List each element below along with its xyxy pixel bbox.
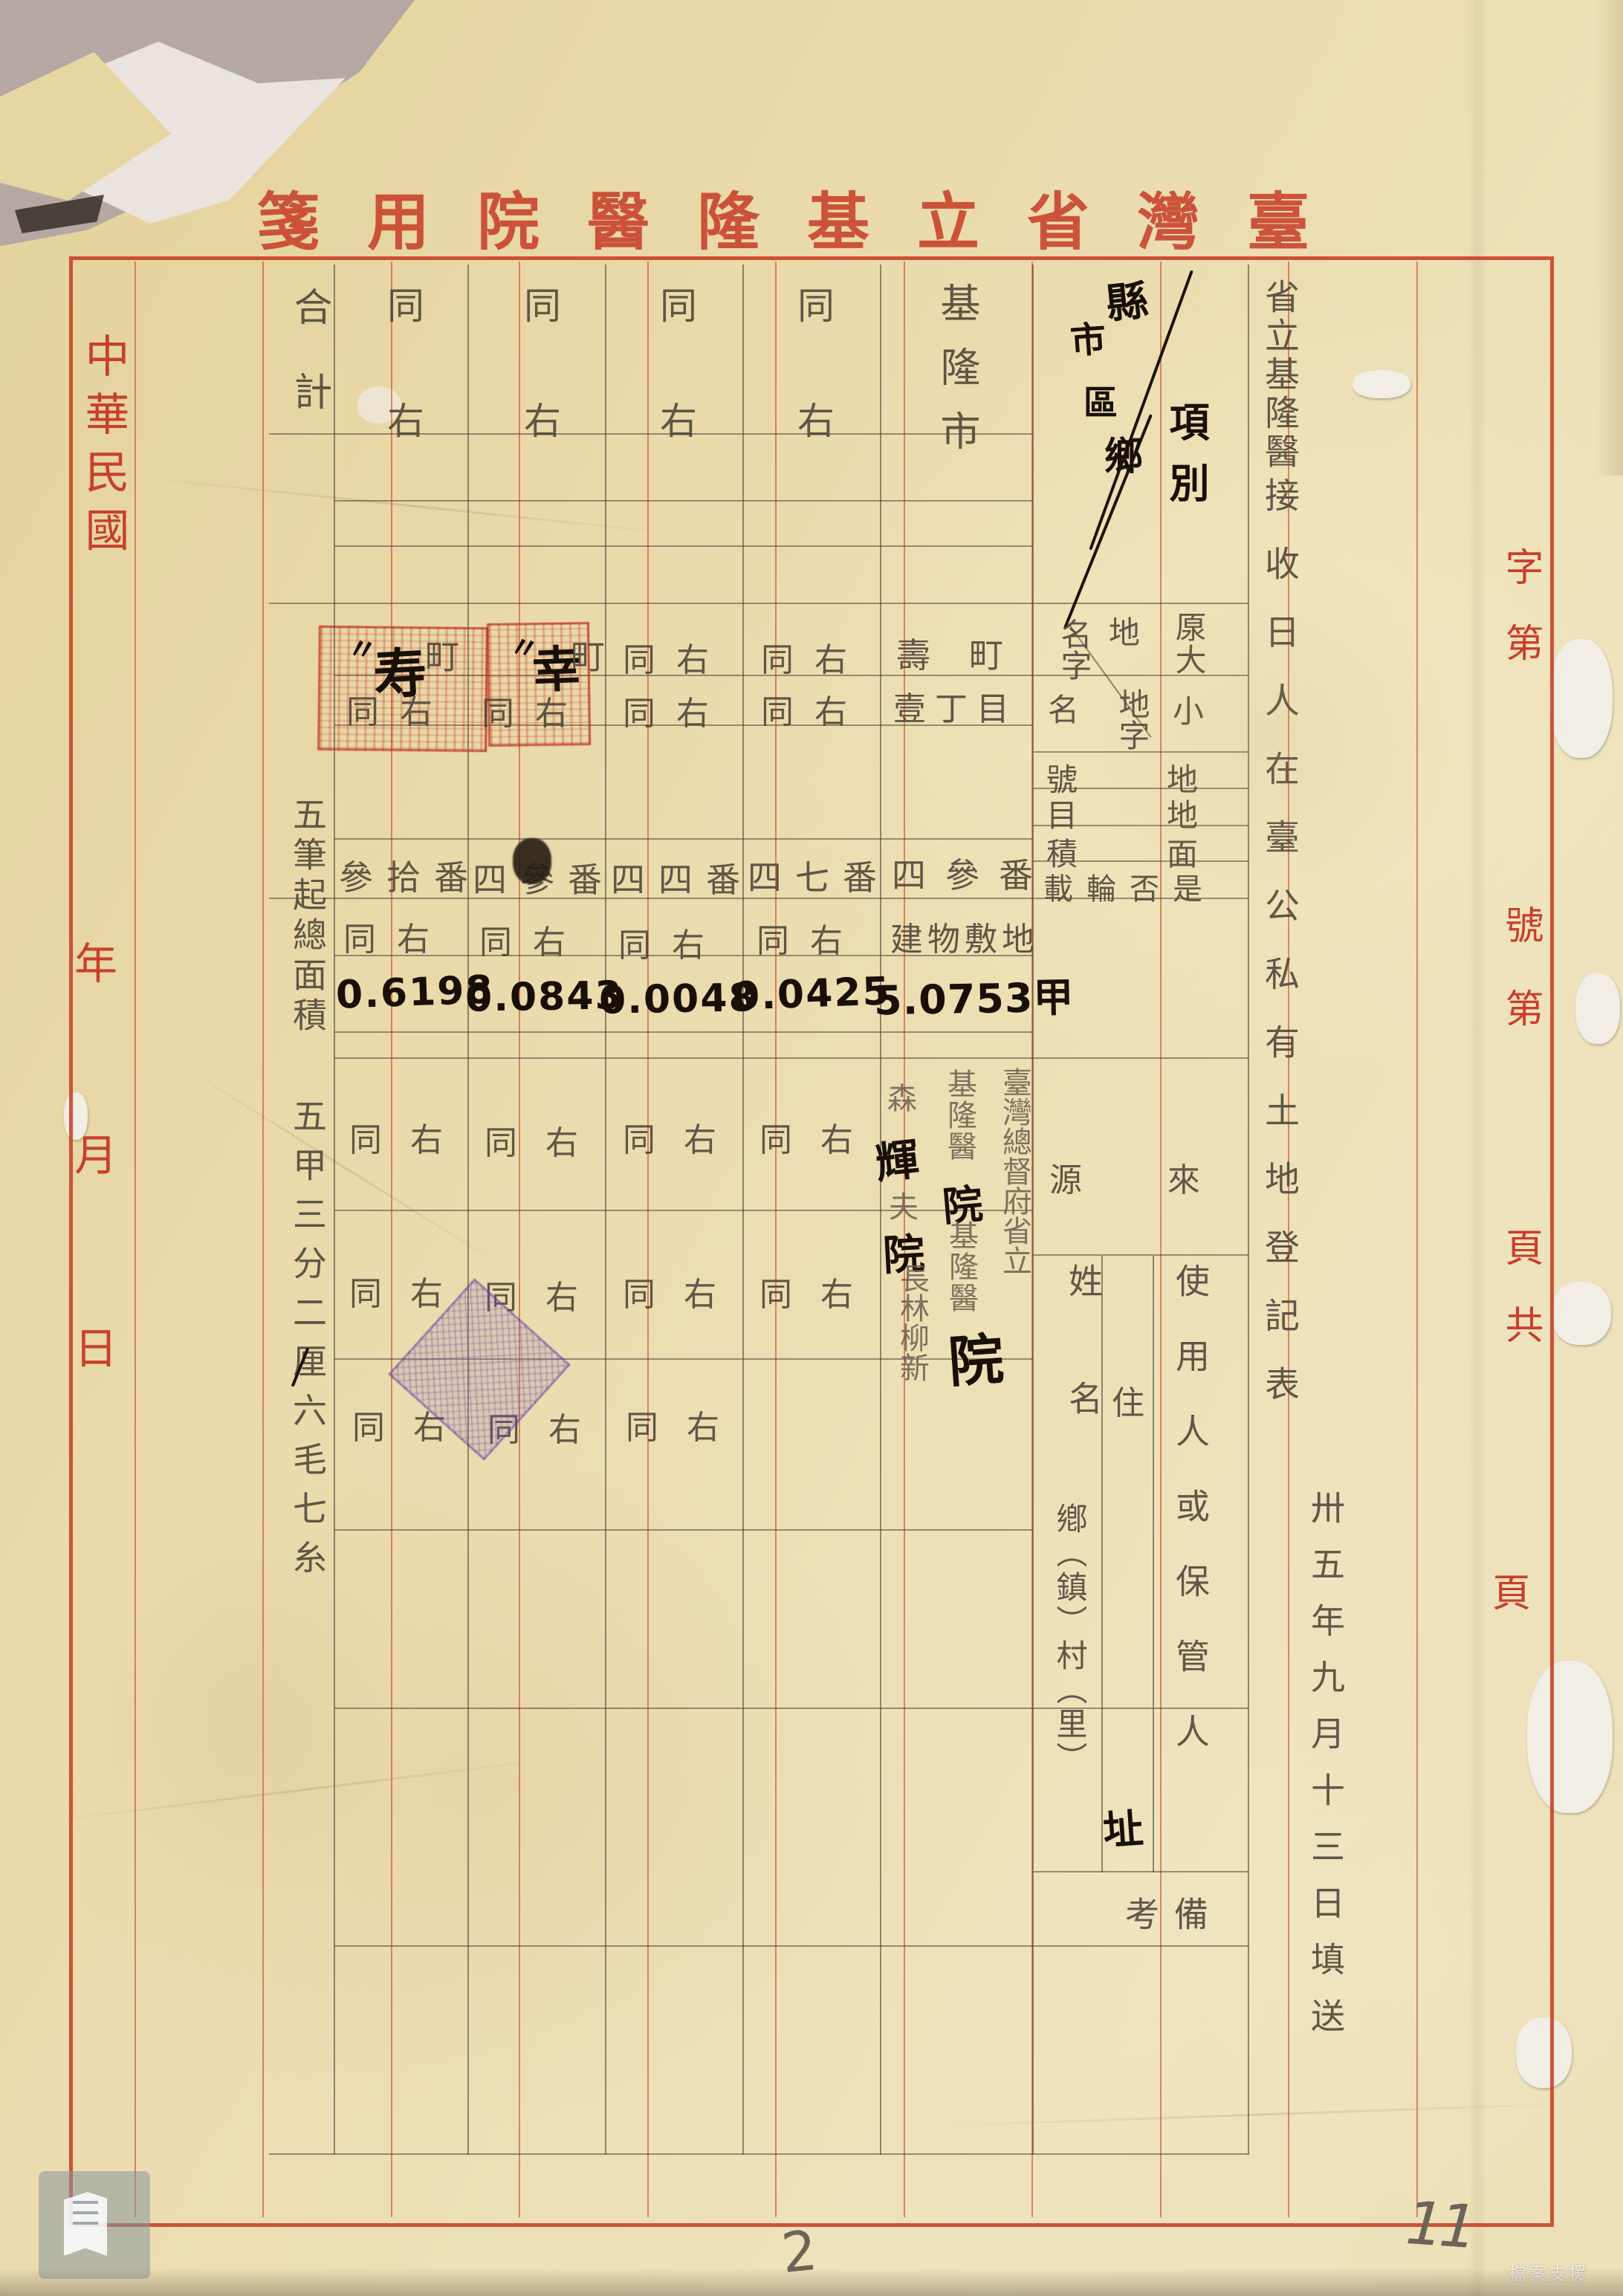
cell-category-c2: 同右 xyxy=(757,914,864,961)
cell-oaza-c2: 同右 xyxy=(761,633,868,681)
cell-name-c3: 同右 xyxy=(623,1268,745,1315)
cell-source-c2: 同右 xyxy=(759,1113,881,1161)
cell-name-c1-ink-large: 院 xyxy=(945,1315,1005,1398)
table-line xyxy=(334,838,1033,840)
ruled-line xyxy=(519,262,520,2217)
right-margin-ye-gong: 頁共 xyxy=(1492,1228,1548,1382)
table-line xyxy=(334,1057,1248,1059)
label-remark: 備考 xyxy=(1115,1896,1213,2296)
bottom-edge-shadow xyxy=(0,2268,1623,2296)
right-margin-hao-di: 號第 xyxy=(1492,905,1548,1071)
left-margin-year: 年 xyxy=(74,929,117,991)
left-margin-month: 月 xyxy=(74,1121,117,1183)
cell-koaza-c5: 同右 xyxy=(346,685,453,733)
watermark-book-line xyxy=(73,2201,98,2204)
cell-name-c1-o: 夫 xyxy=(889,1183,919,1226)
cell-lot-c5: 參拾番 xyxy=(339,851,482,900)
cell-name-c1-director: 長林柳新 xyxy=(890,1263,933,1382)
cell-oaza-c3: 同右 xyxy=(623,633,730,681)
corner-region-district: 區 xyxy=(1083,376,1118,425)
cell-name-c1-line1: 基隆醫 xyxy=(939,1220,982,1314)
left-margin-day: 日 xyxy=(74,1314,117,1376)
cell-county-c3: 同右 xyxy=(649,286,702,516)
ruled-line xyxy=(391,262,392,2217)
table-line xyxy=(269,2153,1248,2155)
label-source: 來源 xyxy=(1049,1153,1286,1201)
label-landname-b-left: 名 xyxy=(1048,685,1079,730)
table-line xyxy=(334,1945,1248,1947)
cell-lot-c2: 四七番 xyxy=(748,851,890,900)
scanned-land-registration-form: 箋用院醫隆基立省灣臺 中華民國 年 月 日 字第 號第 頁共 頁 省立基隆醫 接… xyxy=(0,0,1623,2296)
label-name: 姓名 xyxy=(1058,1263,1107,1498)
paper-hole xyxy=(1575,973,1620,1044)
cell-source-c3: 同右 xyxy=(623,1113,745,1161)
corner-region-county: 縣 xyxy=(1103,267,1150,331)
left-margin-era: 中華民國 xyxy=(71,333,136,565)
cell-category-c3: 同右 xyxy=(618,918,725,966)
cell-name-c1-ink-teru: 輝 xyxy=(872,1124,921,1191)
table-line xyxy=(334,1708,1248,1709)
label-address-top: 住 xyxy=(1112,1376,1144,1424)
cell-koaza-c1: 壹丁目 xyxy=(893,682,1018,730)
cell-koaza-c2: 同右 xyxy=(761,685,868,733)
paper-hole xyxy=(1552,1282,1611,1345)
right-margin-ye: 頁 xyxy=(1492,1562,1531,1618)
ruled-line xyxy=(262,262,264,2217)
stationery-title-stamp: 箋用院醫隆基立省灣臺 xyxy=(257,172,1357,262)
cell-category-c4: 同右 xyxy=(479,915,586,963)
cell-source-c1-line2: 基隆醫 xyxy=(938,1068,981,1162)
cell-name-c2: 同右 xyxy=(759,1268,881,1315)
cell-oaza-c1: 壽町 xyxy=(896,629,1042,678)
cell-lot-c1: 四參番 xyxy=(892,849,1052,898)
table-line xyxy=(334,1031,1033,1033)
corner-number-note: 11 xyxy=(1404,2188,1475,2262)
stain xyxy=(89,1523,401,1910)
watermark-book-line xyxy=(73,2211,98,2214)
cell-lot-c3: 四四番 xyxy=(611,853,754,902)
cell-oaza-c4: 町 xyxy=(571,630,605,679)
ruled-line xyxy=(775,262,777,2217)
cell-county-c1: 基隆市 xyxy=(927,282,986,474)
cell-area-c2: 0.0425 xyxy=(732,969,892,1019)
corner-region-township: 鄉 xyxy=(1104,425,1143,481)
archive-watermark-logo xyxy=(39,2171,150,2279)
table-line xyxy=(334,1529,1033,1531)
doc-filed-date: 卅五年九月十三日填送 xyxy=(1300,1490,1350,2055)
label-address-ink: 址 xyxy=(1101,1795,1144,1857)
cell-area-c1: 5.0753甲 xyxy=(873,964,1075,1027)
total-line2: 五甲三分二厘六毛七糸 xyxy=(282,1098,331,1589)
total-line1: 五筆起總面積 xyxy=(282,797,331,1037)
table-subline xyxy=(1153,1256,1154,1872)
cell-oaza-c5: 町 xyxy=(425,630,459,679)
cell-county-c4: 同右 xyxy=(513,286,566,516)
ruled-line xyxy=(1416,262,1418,2217)
cell-county-c5: 同右 xyxy=(376,286,430,516)
cell-category-c1: 建物敷地 xyxy=(890,912,1039,960)
cell-category-c5: 同右 xyxy=(343,912,450,960)
edge-wear xyxy=(1596,0,1623,476)
table-line xyxy=(1033,1871,1248,1872)
cell-koaza-c4: 同右 xyxy=(482,687,589,734)
label-address-units: 鄕（鎮）村（里） xyxy=(1046,1502,1092,1776)
watermark-book-line xyxy=(73,2222,98,2225)
cell-source-c5: 同右 xyxy=(349,1113,471,1161)
corner-item-label: 項別 xyxy=(1156,401,1215,523)
cell-address-c3: 同右 xyxy=(626,1401,748,1448)
stain xyxy=(1078,557,1464,914)
table-line xyxy=(1033,1254,1248,1256)
total-label: 合計 xyxy=(281,287,337,456)
cell-name-c1-mori: 森 xyxy=(887,1074,917,1118)
right-margin-zi-di: 字第 xyxy=(1492,547,1548,698)
cell-county-c2: 同右 xyxy=(786,286,840,516)
cell-koaza-c3: 同右 xyxy=(623,687,730,734)
paper-hole xyxy=(1549,639,1613,758)
ruled-line xyxy=(647,262,649,2217)
label-user-or-custodian: 使用人或保管人 xyxy=(1165,1263,1214,1789)
doc-agency: 省立基隆醫 xyxy=(1253,279,1304,472)
cell-source-c1-line1: 臺灣總督府省立 xyxy=(993,1067,1036,1275)
cell-source-c4: 同右 xyxy=(485,1116,606,1164)
table-line xyxy=(334,1210,1033,1211)
ink-blot xyxy=(513,838,551,884)
table-line xyxy=(334,545,1033,547)
corner-region-city: 市 xyxy=(1069,309,1108,363)
